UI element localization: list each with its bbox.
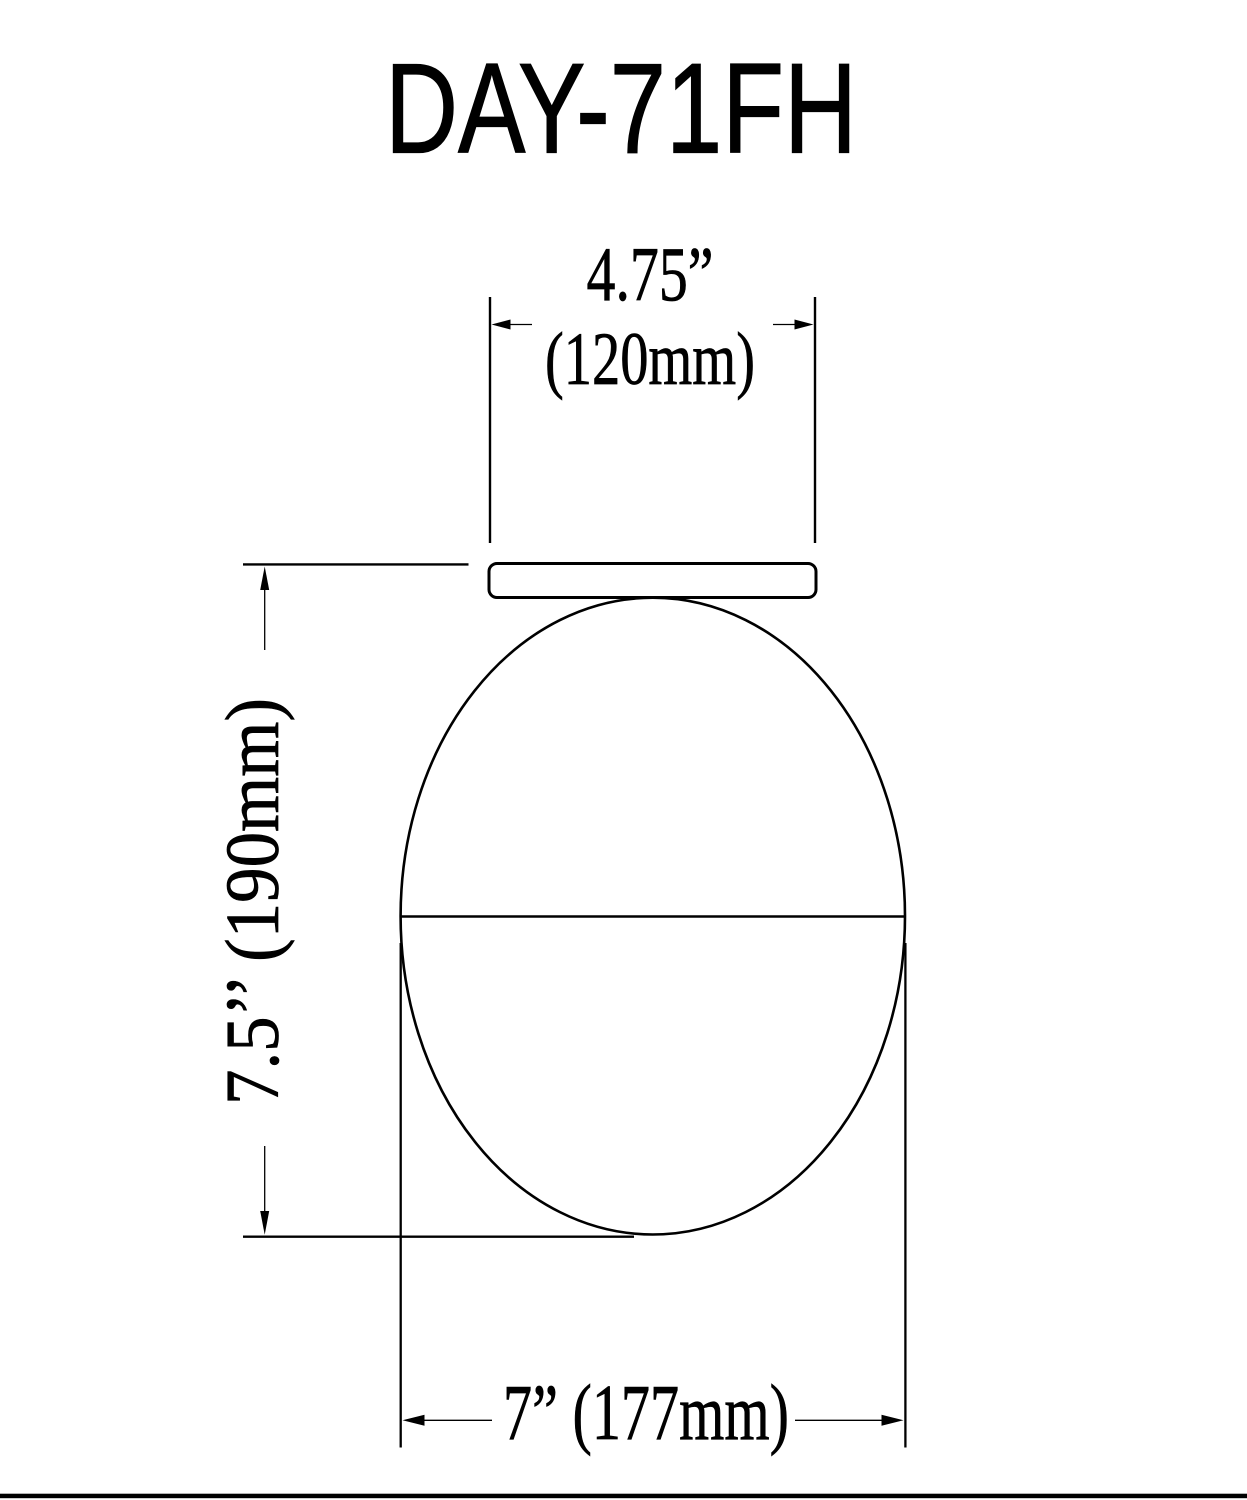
svg-text:7” (177mm): 7” (177mm) [503,1370,789,1457]
svg-text:DAY-71FH: DAY-71FH [385,38,857,181]
svg-text:7.5’’ (190mm): 7.5’’ (190mm) [211,698,295,1105]
svg-text:4.75”: 4.75” [587,231,714,317]
svg-text:(120mm): (120mm) [545,318,755,401]
